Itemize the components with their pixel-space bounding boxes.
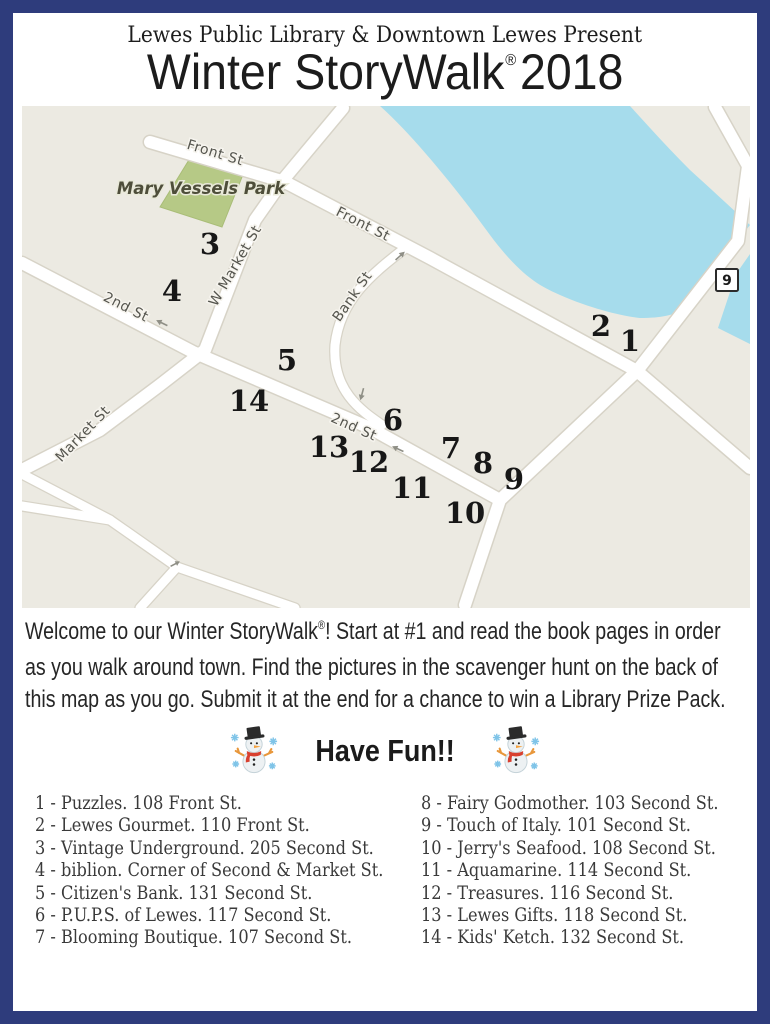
welcome-line-3: this map as you go. Submit it at the end… <box>25 684 726 717</box>
list-item: 9 - Touch of Italy. 101 Second St. <box>421 814 718 836</box>
list-item: 12 - Treasures. 116 Second St. <box>421 882 718 904</box>
list-item: 3 - Vintage Underground. 205 Second St. <box>35 837 383 859</box>
map-marker-3: 3 <box>200 227 220 261</box>
directory-column-left: 1 - Puzzles. 108 Front St. 2 - Lewes Gou… <box>35 792 445 949</box>
have-fun-row: Have Fun!! <box>13 722 757 780</box>
map-marker-9: 9 <box>504 462 524 496</box>
list-item: 14 - Kids' Ketch. 132 Second St. <box>421 926 718 948</box>
list-item: 7 - Blooming Boutique. 107 Second St. <box>35 926 383 948</box>
list-item: 1 - Puzzles. 108 Front St. <box>35 792 383 814</box>
welcome-line-1: Welcome to our Winter StoryWalk®! Start … <box>25 616 726 652</box>
map-marker-2: 2 <box>591 309 611 343</box>
title-main: Winter StoryWalk <box>147 44 504 100</box>
route-9-badge-number: 9 <box>722 273 732 289</box>
registered-mark: ® <box>505 52 516 69</box>
park-label: Mary Vessels Park <box>117 179 286 198</box>
list-item: 2 - Lewes Gourmet. 110 Front St. <box>35 814 383 836</box>
list-item: 4 - biblion. Corner of Second & Market S… <box>35 859 383 881</box>
page-title: Winter StoryWalk®2018 <box>13 43 757 101</box>
map-marker-12: 12 <box>349 445 389 479</box>
map-marker-10: 10 <box>445 496 485 530</box>
list-item: 13 - Lewes Gifts. 118 Second St. <box>421 904 718 926</box>
map-marker-14: 14 <box>229 384 269 418</box>
map-marker-11: 11 <box>392 471 432 505</box>
welcome-paragraph: Welcome to our Winter StoryWalk®! Start … <box>25 616 770 717</box>
snowman-icon <box>229 725 279 777</box>
route-9-badge: 9 <box>716 269 738 291</box>
storywalk-map: Front St Front St 2nd St 2nd St W Market… <box>22 106 750 608</box>
welcome-line-2: as you walk around town. Find the pictur… <box>25 652 726 685</box>
map-marker-4: 4 <box>162 274 182 308</box>
map-canvas: Front St Front St 2nd St 2nd St W Market… <box>22 106 750 608</box>
list-item: 10 - Jerry's Seafood. 108 Second St. <box>421 837 718 859</box>
list-item: 8 - Fairy Godmother. 103 Second St. <box>421 792 718 814</box>
map-marker-6: 6 <box>383 403 403 437</box>
storywalk-flyer: Lewes Public Library & Downtown Lewes Pr… <box>0 0 770 1024</box>
list-item: 5 - Citizen's Bank. 131 Second St. <box>35 882 383 904</box>
map-marker-7: 7 <box>441 431 461 465</box>
map-marker-8: 8 <box>473 446 493 480</box>
registered-mark: ® <box>318 618 325 632</box>
list-item: 6 - P.U.P.S. of Lewes. 117 Second St. <box>35 904 383 926</box>
directory-column-right: 8 - Fairy Godmother. 103 Second St. 9 - … <box>421 792 770 949</box>
list-item: 11 - Aquamarine. 114 Second St. <box>421 859 718 881</box>
map-marker-1: 1 <box>620 324 640 358</box>
map-marker-13: 13 <box>309 430 349 464</box>
map-marker-5: 5 <box>277 343 297 377</box>
have-fun-label: Have Fun!! <box>315 733 454 769</box>
title-year: 2018 <box>520 44 623 100</box>
snowman-icon <box>491 725 541 777</box>
